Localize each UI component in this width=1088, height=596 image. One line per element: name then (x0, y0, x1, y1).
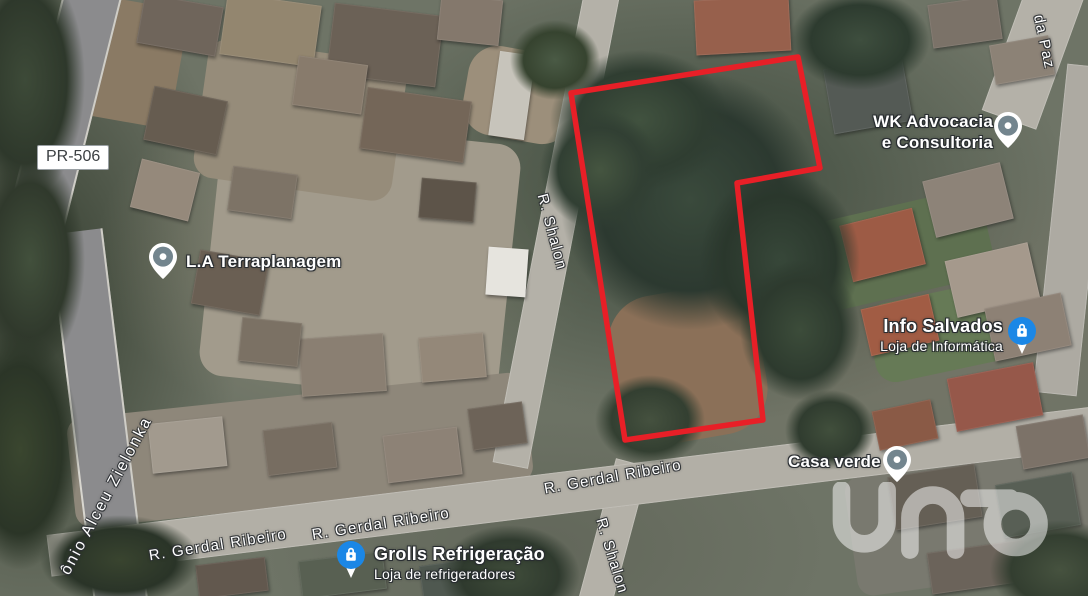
poi-pin-wk-advocacia[interactable] (994, 112, 1022, 148)
map-house-roof (292, 55, 368, 114)
map-trees (595, 375, 705, 465)
place-label-casa-verde[interactable]: Casa verde (788, 452, 881, 473)
place-name-line2: e Consultoria (882, 133, 993, 152)
place-label-info-salvados[interactable]: Info Salvados Loja de Informática (880, 316, 1003, 355)
map-house-roof (922, 162, 1014, 238)
map-house-roof (382, 427, 462, 484)
place-name: Info Salvados (883, 316, 1003, 336)
place-label-wk-advocacia[interactable]: WK Advocacia e Consultoria (873, 112, 993, 153)
map-house-roof (262, 422, 337, 476)
letter-a-bowl (992, 501, 1039, 548)
map-house-roof (147, 416, 227, 474)
map-house-roof (693, 0, 791, 55)
map-house-roof (195, 557, 269, 596)
place-name-line1: WK Advocacia (873, 112, 993, 131)
store-pin-info-salvados[interactable] (1007, 317, 1037, 355)
map-house-roof (298, 333, 387, 397)
watermark-una-logo (828, 482, 1052, 560)
map-house-roof (418, 178, 476, 223)
poi-pin-casa-verde[interactable] (883, 446, 911, 482)
place-name: Grolls Refrigeração (374, 544, 545, 564)
place-subtitle: Loja de refrigeradores (374, 566, 545, 583)
map-trees (510, 20, 600, 100)
letter-n (910, 495, 956, 550)
map-house-roof (467, 401, 527, 450)
satellite-map-canvas[interactable]: PR-506 R. Shalon R. Shalon R. Gerdal Rib… (0, 0, 1088, 596)
map-house-roof (485, 247, 528, 298)
store-pin-grolls[interactable] (336, 541, 366, 579)
place-label-grolls[interactable]: Grolls Refrigeração Loja de refrigerador… (374, 544, 545, 583)
map-house-roof (437, 0, 503, 46)
map-house-roof (130, 158, 200, 221)
map-trees (540, 110, 660, 230)
map-house-roof (227, 165, 298, 219)
place-subtitle: Loja de Informática (880, 338, 1003, 355)
poi-pin-terraplanagem[interactable] (149, 243, 177, 279)
map-trees (790, 0, 930, 90)
road-shield-pr506: PR-506 (37, 145, 109, 170)
map-trees (740, 260, 860, 400)
letter-u (841, 490, 887, 544)
place-label-terraplanagem[interactable]: L.A Terraplanagem (186, 252, 342, 273)
map-house-roof (927, 0, 1002, 49)
map-house-roof (418, 332, 487, 382)
map-house-roof (238, 317, 302, 367)
